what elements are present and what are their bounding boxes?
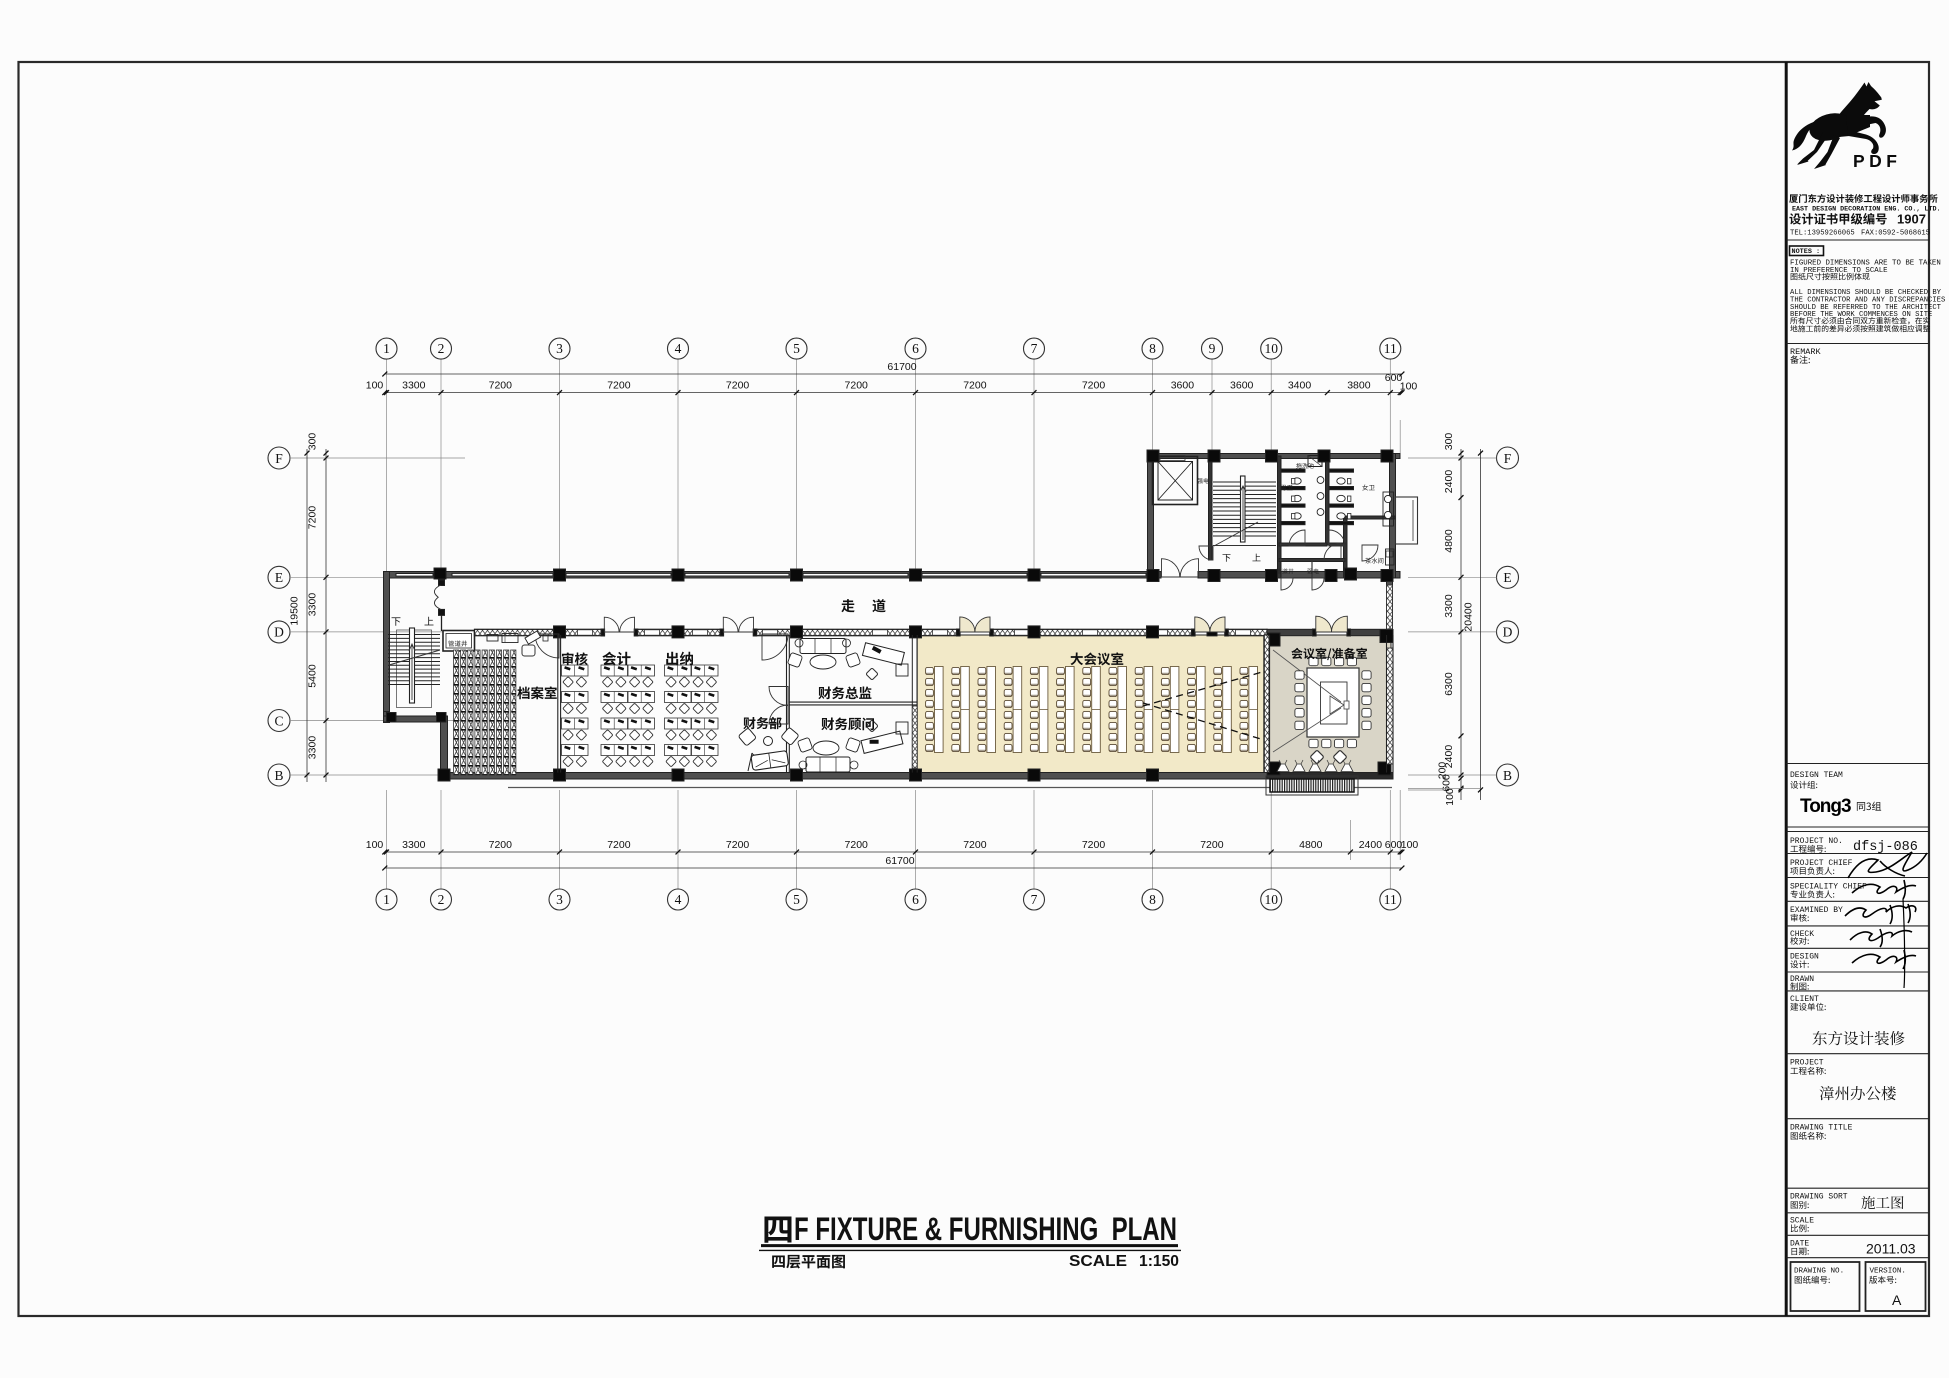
- svg-text:9: 9: [1209, 341, 1216, 356]
- svg-text:7200: 7200: [963, 839, 987, 851]
- svg-text:61700: 61700: [887, 361, 916, 373]
- svg-text:B: B: [274, 768, 283, 783]
- svg-text:CHECK: CHECK: [1790, 930, 1814, 939]
- svg-text:PROJECT NO.: PROJECT NO.: [1790, 837, 1843, 846]
- svg-text:2400: 2400: [1359, 839, 1383, 851]
- svg-text:7200: 7200: [1082, 839, 1106, 851]
- svg-text:3600: 3600: [1171, 380, 1195, 392]
- svg-text:19500: 19500: [289, 596, 301, 625]
- svg-text:10: 10: [1264, 341, 1278, 356]
- svg-text:4800: 4800: [1443, 529, 1455, 553]
- svg-text:FAX:0592-5068615: FAX:0592-5068615: [1861, 230, 1930, 238]
- svg-text:NOTES :: NOTES :: [1792, 248, 1821, 256]
- svg-text:6: 6: [912, 892, 919, 907]
- svg-text:3400: 3400: [1288, 380, 1312, 392]
- svg-text:F FIXTURE & FURNISHING PLAN: F FIXTURE & FURNISHING PLAN: [794, 1211, 1177, 1247]
- svg-text:2: 2: [438, 341, 445, 356]
- svg-text:7200: 7200: [726, 380, 750, 392]
- svg-text:E: E: [1503, 570, 1511, 585]
- svg-text:1: 1: [383, 892, 390, 907]
- svg-text:PROJECT CHIEF: PROJECT CHIEF: [1790, 859, 1853, 868]
- svg-text:SCALE: SCALE: [1069, 1253, 1127, 1270]
- svg-text:3300: 3300: [1443, 594, 1455, 618]
- svg-text:DATE: DATE: [1790, 1240, 1809, 1249]
- svg-text:D: D: [1503, 625, 1513, 640]
- svg-text:7200: 7200: [489, 380, 513, 392]
- svg-text:7200: 7200: [963, 380, 987, 392]
- svg-text:100: 100: [1400, 381, 1418, 393]
- svg-text:20400: 20400: [1463, 602, 1475, 631]
- svg-text:SCALE: SCALE: [1790, 1217, 1814, 1226]
- svg-text:B: B: [1503, 768, 1512, 783]
- svg-text:100: 100: [366, 839, 384, 851]
- svg-text:DESIGN: DESIGN: [1790, 953, 1819, 962]
- svg-text:7200: 7200: [307, 506, 319, 530]
- svg-text:3300: 3300: [307, 593, 319, 617]
- svg-text:DRAWN: DRAWN: [1790, 975, 1814, 984]
- svg-text:1907: 1907: [1897, 212, 1926, 227]
- svg-text:7200: 7200: [1082, 380, 1106, 392]
- svg-text:7200: 7200: [845, 380, 869, 392]
- svg-text:7: 7: [1031, 341, 1038, 356]
- svg-text:7200: 7200: [607, 839, 631, 851]
- svg-text:Tong3: Tong3: [1800, 796, 1851, 817]
- svg-text:10: 10: [1264, 892, 1278, 907]
- svg-text:3300: 3300: [402, 839, 426, 851]
- svg-text:7200: 7200: [607, 380, 631, 392]
- svg-text:DRAWING SORT: DRAWING SORT: [1790, 1193, 1848, 1202]
- svg-text:3800: 3800: [1347, 380, 1371, 392]
- svg-text:6: 6: [912, 341, 919, 356]
- svg-text:11: 11: [1384, 341, 1397, 356]
- svg-text:D: D: [274, 625, 284, 640]
- svg-text:CLIENT: CLIENT: [1790, 995, 1819, 1004]
- svg-text:TEL:13959266065: TEL:13959266065: [1790, 230, 1855, 238]
- svg-text:F: F: [1504, 451, 1512, 466]
- svg-text:100: 100: [1444, 788, 1456, 806]
- svg-text:100: 100: [1401, 839, 1419, 851]
- svg-text:PDF: PDF: [1853, 151, 1902, 171]
- svg-text:2: 2: [438, 892, 445, 907]
- svg-text:DESIGN TEAM: DESIGN TEAM: [1790, 771, 1843, 780]
- svg-text:2011.03: 2011.03: [1866, 1241, 1916, 1257]
- svg-text:3300: 3300: [402, 380, 426, 392]
- svg-text:3: 3: [556, 341, 563, 356]
- svg-text:3600: 3600: [1230, 380, 1254, 392]
- svg-text:7200: 7200: [489, 839, 513, 851]
- svg-text:6300: 6300: [1443, 672, 1455, 696]
- svg-text:300: 300: [307, 433, 319, 451]
- svg-text:dfsj-086: dfsj-086: [1853, 840, 1918, 855]
- svg-text:3300: 3300: [307, 736, 319, 760]
- svg-text:DRAWING NO.: DRAWING NO.: [1794, 1268, 1844, 1276]
- svg-text:1: 1: [383, 341, 390, 356]
- svg-text:E: E: [275, 570, 283, 585]
- svg-text:7: 7: [1031, 892, 1038, 907]
- svg-text:100: 100: [366, 380, 384, 392]
- svg-text:8: 8: [1149, 892, 1156, 907]
- svg-text:7200: 7200: [726, 839, 750, 851]
- svg-text:DRAWING TITLE: DRAWING TITLE: [1790, 1124, 1853, 1133]
- svg-text:A: A: [1892, 1292, 1902, 1308]
- svg-text:4: 4: [675, 892, 682, 907]
- svg-text:4: 4: [675, 341, 682, 356]
- svg-text:EXAMINED BY: EXAMINED BY: [1790, 906, 1843, 915]
- svg-text:2400: 2400: [1443, 470, 1455, 494]
- svg-text:VERSION.: VERSION.: [1870, 1268, 1906, 1276]
- svg-text:1:150: 1:150: [1139, 1253, 1179, 1270]
- svg-text:PROJECT: PROJECT: [1790, 1059, 1824, 1068]
- svg-text:REMARK: REMARK: [1790, 347, 1822, 357]
- svg-text:C: C: [274, 713, 283, 728]
- svg-text:F: F: [275, 451, 283, 466]
- svg-text:5: 5: [793, 341, 800, 356]
- svg-text:300: 300: [1443, 433, 1455, 451]
- svg-text:8: 8: [1149, 341, 1156, 356]
- svg-text:7200: 7200: [1200, 839, 1224, 851]
- svg-text:61700: 61700: [885, 855, 914, 867]
- svg-text:3: 3: [556, 892, 563, 907]
- svg-text:5: 5: [793, 892, 800, 907]
- svg-text:4800: 4800: [1299, 839, 1323, 851]
- svg-text:7200: 7200: [845, 839, 869, 851]
- svg-text:11: 11: [1384, 892, 1397, 907]
- svg-text:5400: 5400: [307, 664, 319, 688]
